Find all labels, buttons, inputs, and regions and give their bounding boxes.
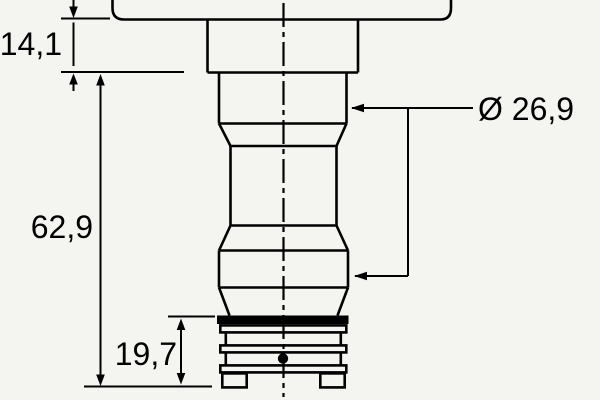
arrow-down [69, 7, 78, 19]
dimension-label-lower-section: 19,7 [115, 336, 177, 372]
arrow-up [96, 74, 105, 86]
arrow-down [177, 373, 186, 385]
dimension-label-diameter: Ø 26,9 [478, 91, 574, 127]
dimension-top-section: 14,1 [0, 0, 184, 91]
arrow-up [69, 74, 78, 85]
arrow-left-upper [351, 104, 364, 113]
arrow-up [177, 319, 186, 331]
foot-left [222, 373, 246, 387]
dimension-label-top-section: 14,1 [0, 26, 62, 62]
dimension-diameter: Ø 26,9 [351, 91, 574, 280]
technical-drawing: 14,1 62,9 19,7 Ø 26,9 [0, 0, 600, 400]
arrow-left-lower [354, 272, 367, 281]
arrow-down [96, 375, 105, 387]
part-cross-section [113, 0, 452, 387]
dimension-lower-section: 19,7 [115, 317, 215, 385]
foot-right [320, 373, 344, 387]
cap-outline [113, 0, 452, 20]
dimension-label-body-height: 62,9 [31, 209, 93, 245]
technical-drawing-canvas: 14,1 62,9 19,7 Ø 26,9 [0, 0, 600, 400]
